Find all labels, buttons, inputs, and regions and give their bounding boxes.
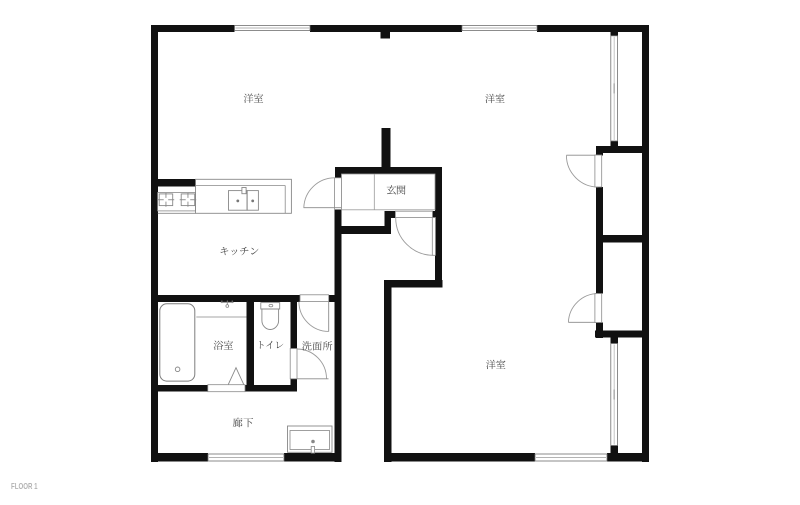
svg-text:FLOOR 1: FLOOR 1 [11, 482, 38, 491]
